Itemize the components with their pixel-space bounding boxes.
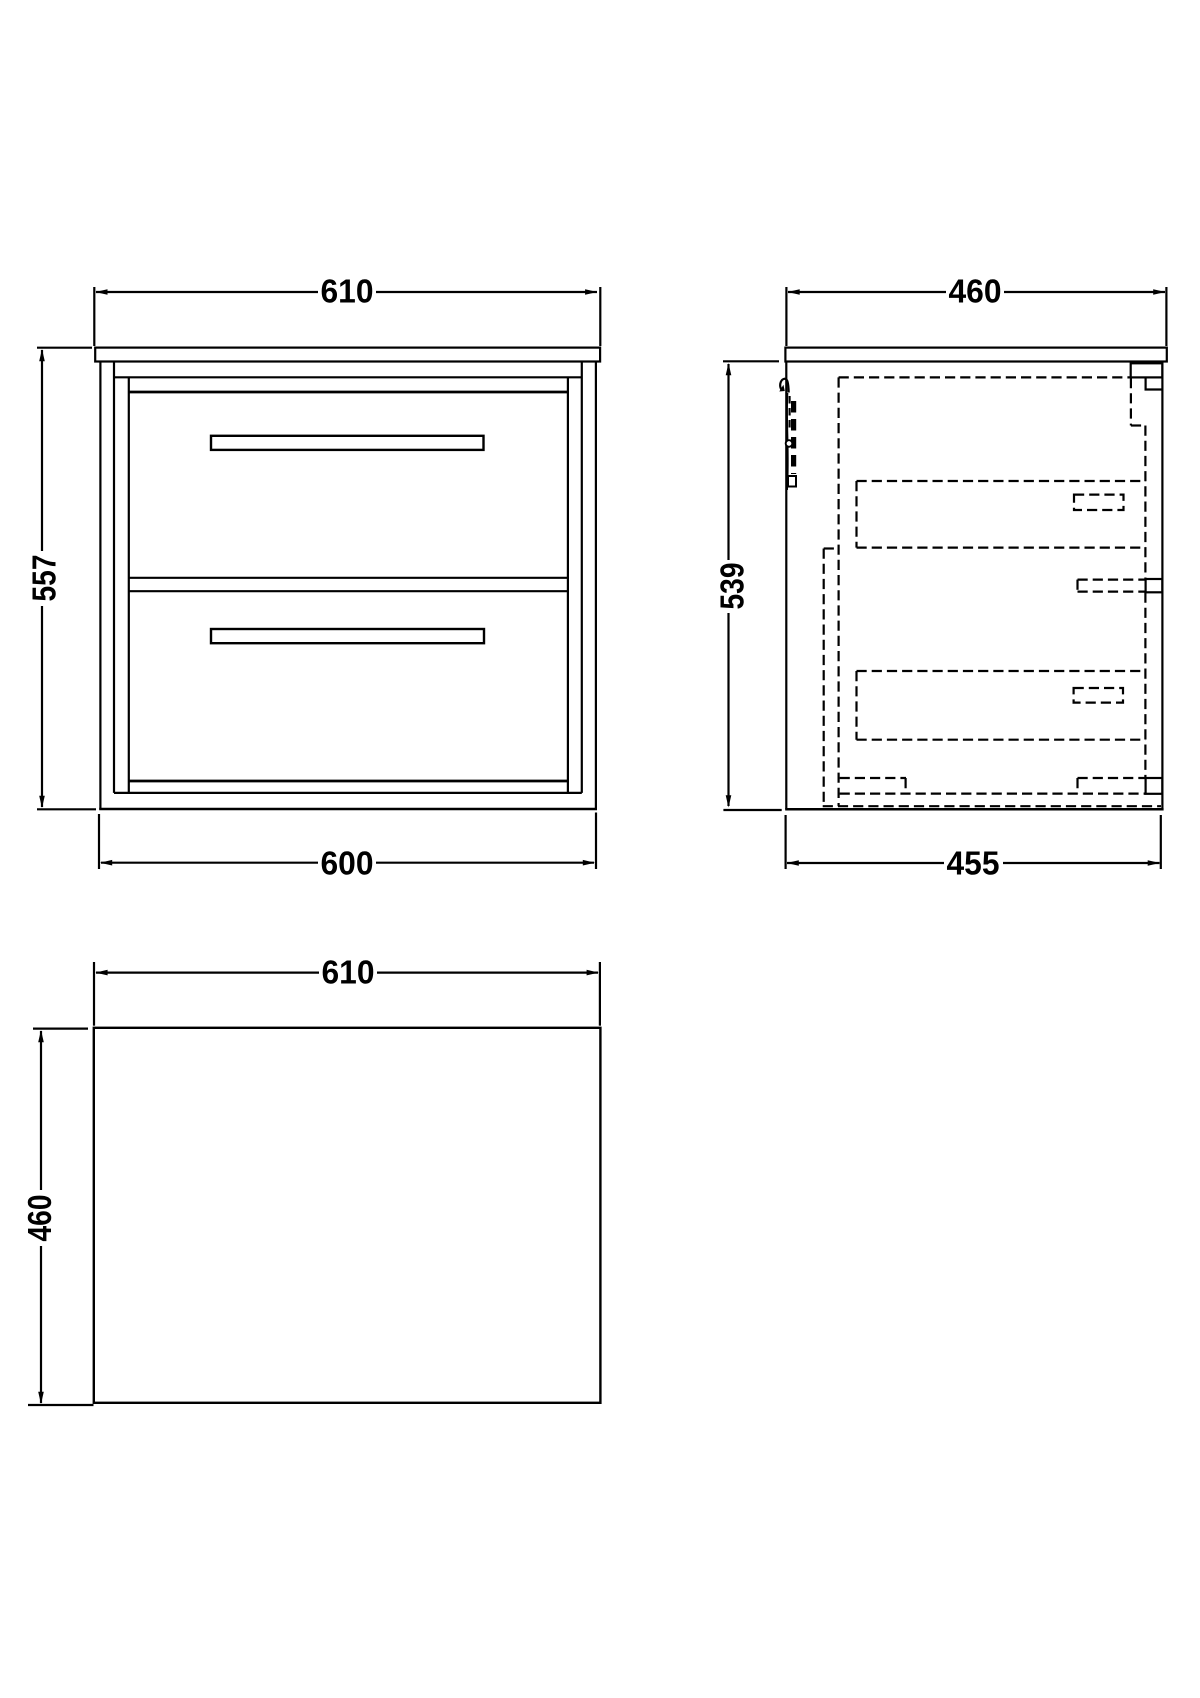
svg-text:610: 610 bbox=[321, 274, 374, 311]
svg-text:610: 610 bbox=[322, 955, 375, 992]
svg-text:557: 557 bbox=[27, 555, 64, 602]
svg-text:455: 455 bbox=[947, 846, 1000, 883]
svg-text:460: 460 bbox=[949, 274, 1002, 311]
svg-text:600: 600 bbox=[321, 845, 374, 882]
svg-text:539: 539 bbox=[715, 563, 752, 610]
svg-text:460: 460 bbox=[22, 1195, 59, 1242]
